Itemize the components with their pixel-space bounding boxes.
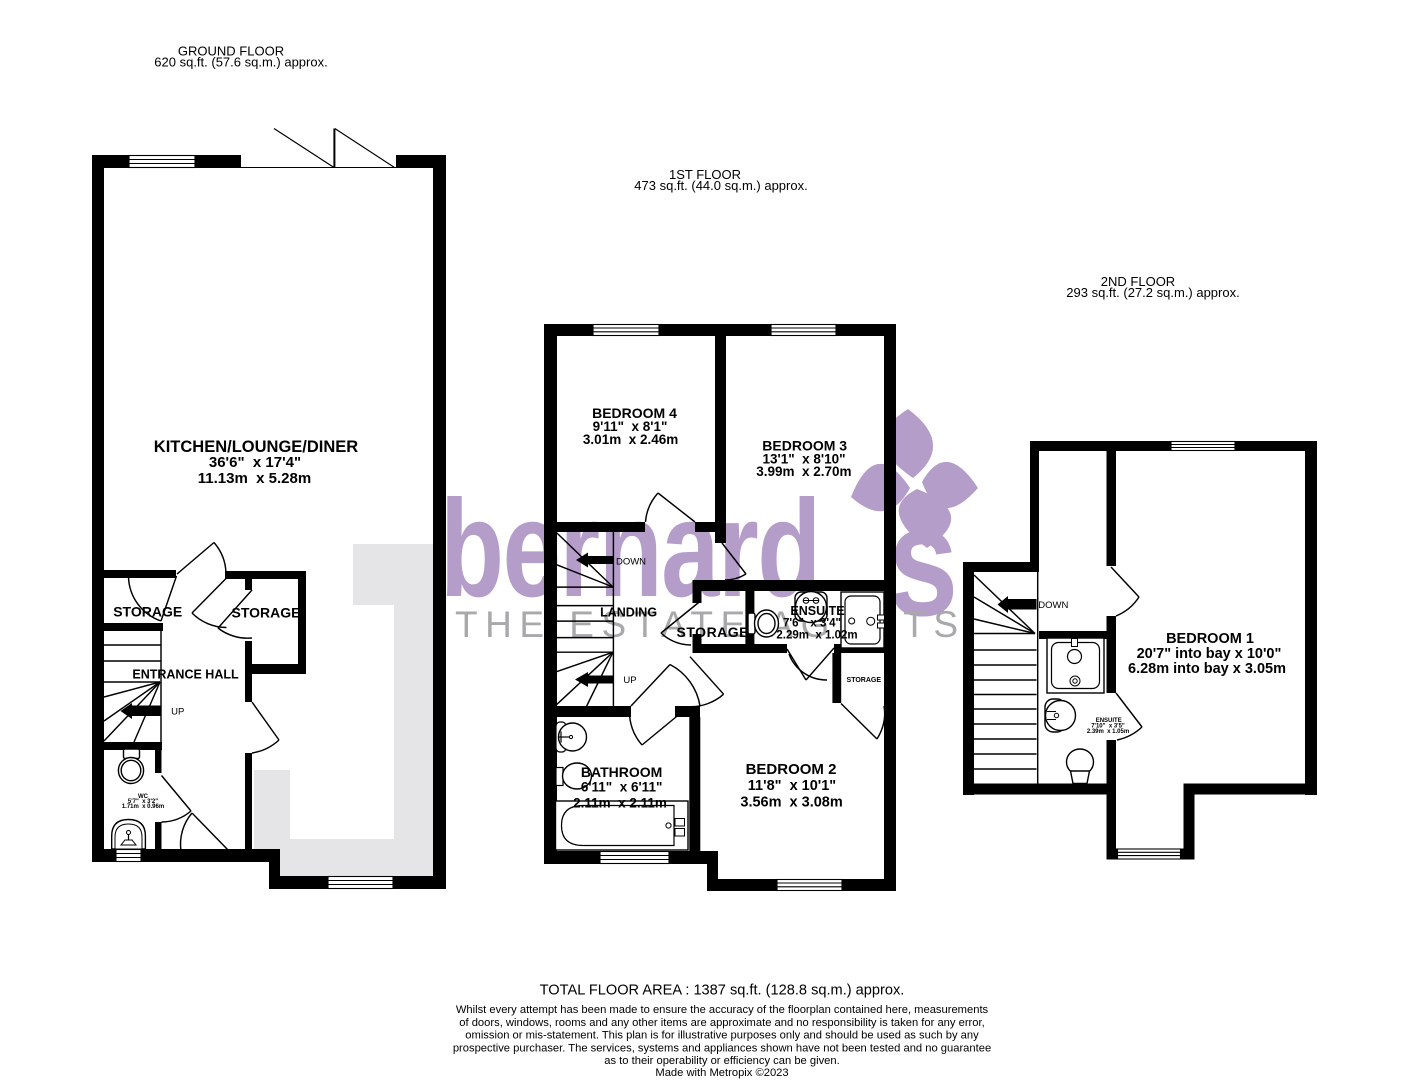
svg-text:2.39m x 1.05m: 2.39m x 1.05m <box>1087 729 1129 735</box>
svg-text:620 sq.ft. (57.6 sq.m.) approx: 620 sq.ft. (57.6 sq.m.) approx. <box>154 55 327 70</box>
svg-text:BEDROOM 2: BEDROOM 2 <box>746 761 837 778</box>
svg-text:BEDROOM 1: BEDROOM 1 <box>1166 631 1254 647</box>
svg-text:20'7" into bay x 10'0": 20'7" into bay x 10'0" <box>1137 646 1282 662</box>
svg-text:STORAGE: STORAGE <box>847 677 882 684</box>
svg-text:3.56m x 3.08m: 3.56m x 3.08m <box>740 795 842 811</box>
svg-text:2.11m x 2.11m: 2.11m x 2.11m <box>573 796 667 811</box>
svg-text:3.99m x 2.70m: 3.99m x 2.70m <box>756 464 851 479</box>
svg-text:DOWN: DOWN <box>616 557 646 568</box>
svg-text:DOWN: DOWN <box>1038 600 1068 611</box>
svg-text:BATHROOM: BATHROOM <box>581 764 662 780</box>
svg-text:Whilst every attempt has been: Whilst every attempt has been made to en… <box>456 1004 989 1016</box>
svg-text:2.29m x 1.02m: 2.29m x 1.02m <box>776 630 857 642</box>
svg-text:1.71m x 0.96m: 1.71m x 0.96m <box>122 804 164 810</box>
svg-text:STORAGE: STORAGE <box>232 605 301 621</box>
svg-text:7'6" x 3'4": 7'6" x 3'4" <box>783 618 841 630</box>
svg-text:11.13m x 5.28m: 11.13m x 5.28m <box>198 470 311 487</box>
svg-text:UP: UP <box>171 707 184 718</box>
svg-text:LANDING: LANDING <box>600 606 657 620</box>
svg-text:of doors, windows, rooms and a: of doors, windows, rooms and any other i… <box>459 1017 984 1029</box>
svg-text:473 sq.ft. (44.0 sq.m.) approx: 473 sq.ft. (44.0 sq.m.) approx. <box>634 178 807 193</box>
svg-text:omission or mis-statement. Thi: omission or mis-statement. This plan is … <box>465 1030 979 1042</box>
svg-text:ENTRANCE HALL: ENTRANCE HALL <box>132 668 239 682</box>
svg-text:ENSUITE: ENSUITE <box>790 604 844 618</box>
svg-text:293 sq.ft. (27.2 sq.m.) approx: 293 sq.ft. (27.2 sq.m.) approx. <box>1066 285 1239 300</box>
svg-text:6.28m into bay x 3.05m: 6.28m into bay x 3.05m <box>1128 661 1286 677</box>
svg-text:bernard: bernard <box>440 471 820 625</box>
svg-text:STORAGE: STORAGE <box>677 624 749 640</box>
svg-text:TOTAL FLOOR AREA : 1387 sq.ft.: TOTAL FLOOR AREA : 1387 sq.ft. (128.8 sq… <box>540 983 905 999</box>
svg-text:6'11" x 6'11": 6'11" x 6'11" <box>581 780 663 795</box>
svg-text:36'6" x 17'4": 36'6" x 17'4" <box>209 454 301 471</box>
svg-text:3.01m x 2.46m: 3.01m x 2.46m <box>583 432 678 447</box>
svg-text:UP: UP <box>623 675 636 686</box>
svg-text:STORAGE: STORAGE <box>113 604 182 620</box>
svg-text:as to their operability or eff: as to their operability or efficiency ca… <box>604 1055 839 1067</box>
svg-text:Made with Metropix ©2023: Made with Metropix ©2023 <box>655 1067 788 1079</box>
svg-text:11'8" x 10'1": 11'8" x 10'1" <box>748 778 836 794</box>
svg-text:prospective purchaser. The ser: prospective purchaser. The services, sys… <box>453 1042 991 1054</box>
